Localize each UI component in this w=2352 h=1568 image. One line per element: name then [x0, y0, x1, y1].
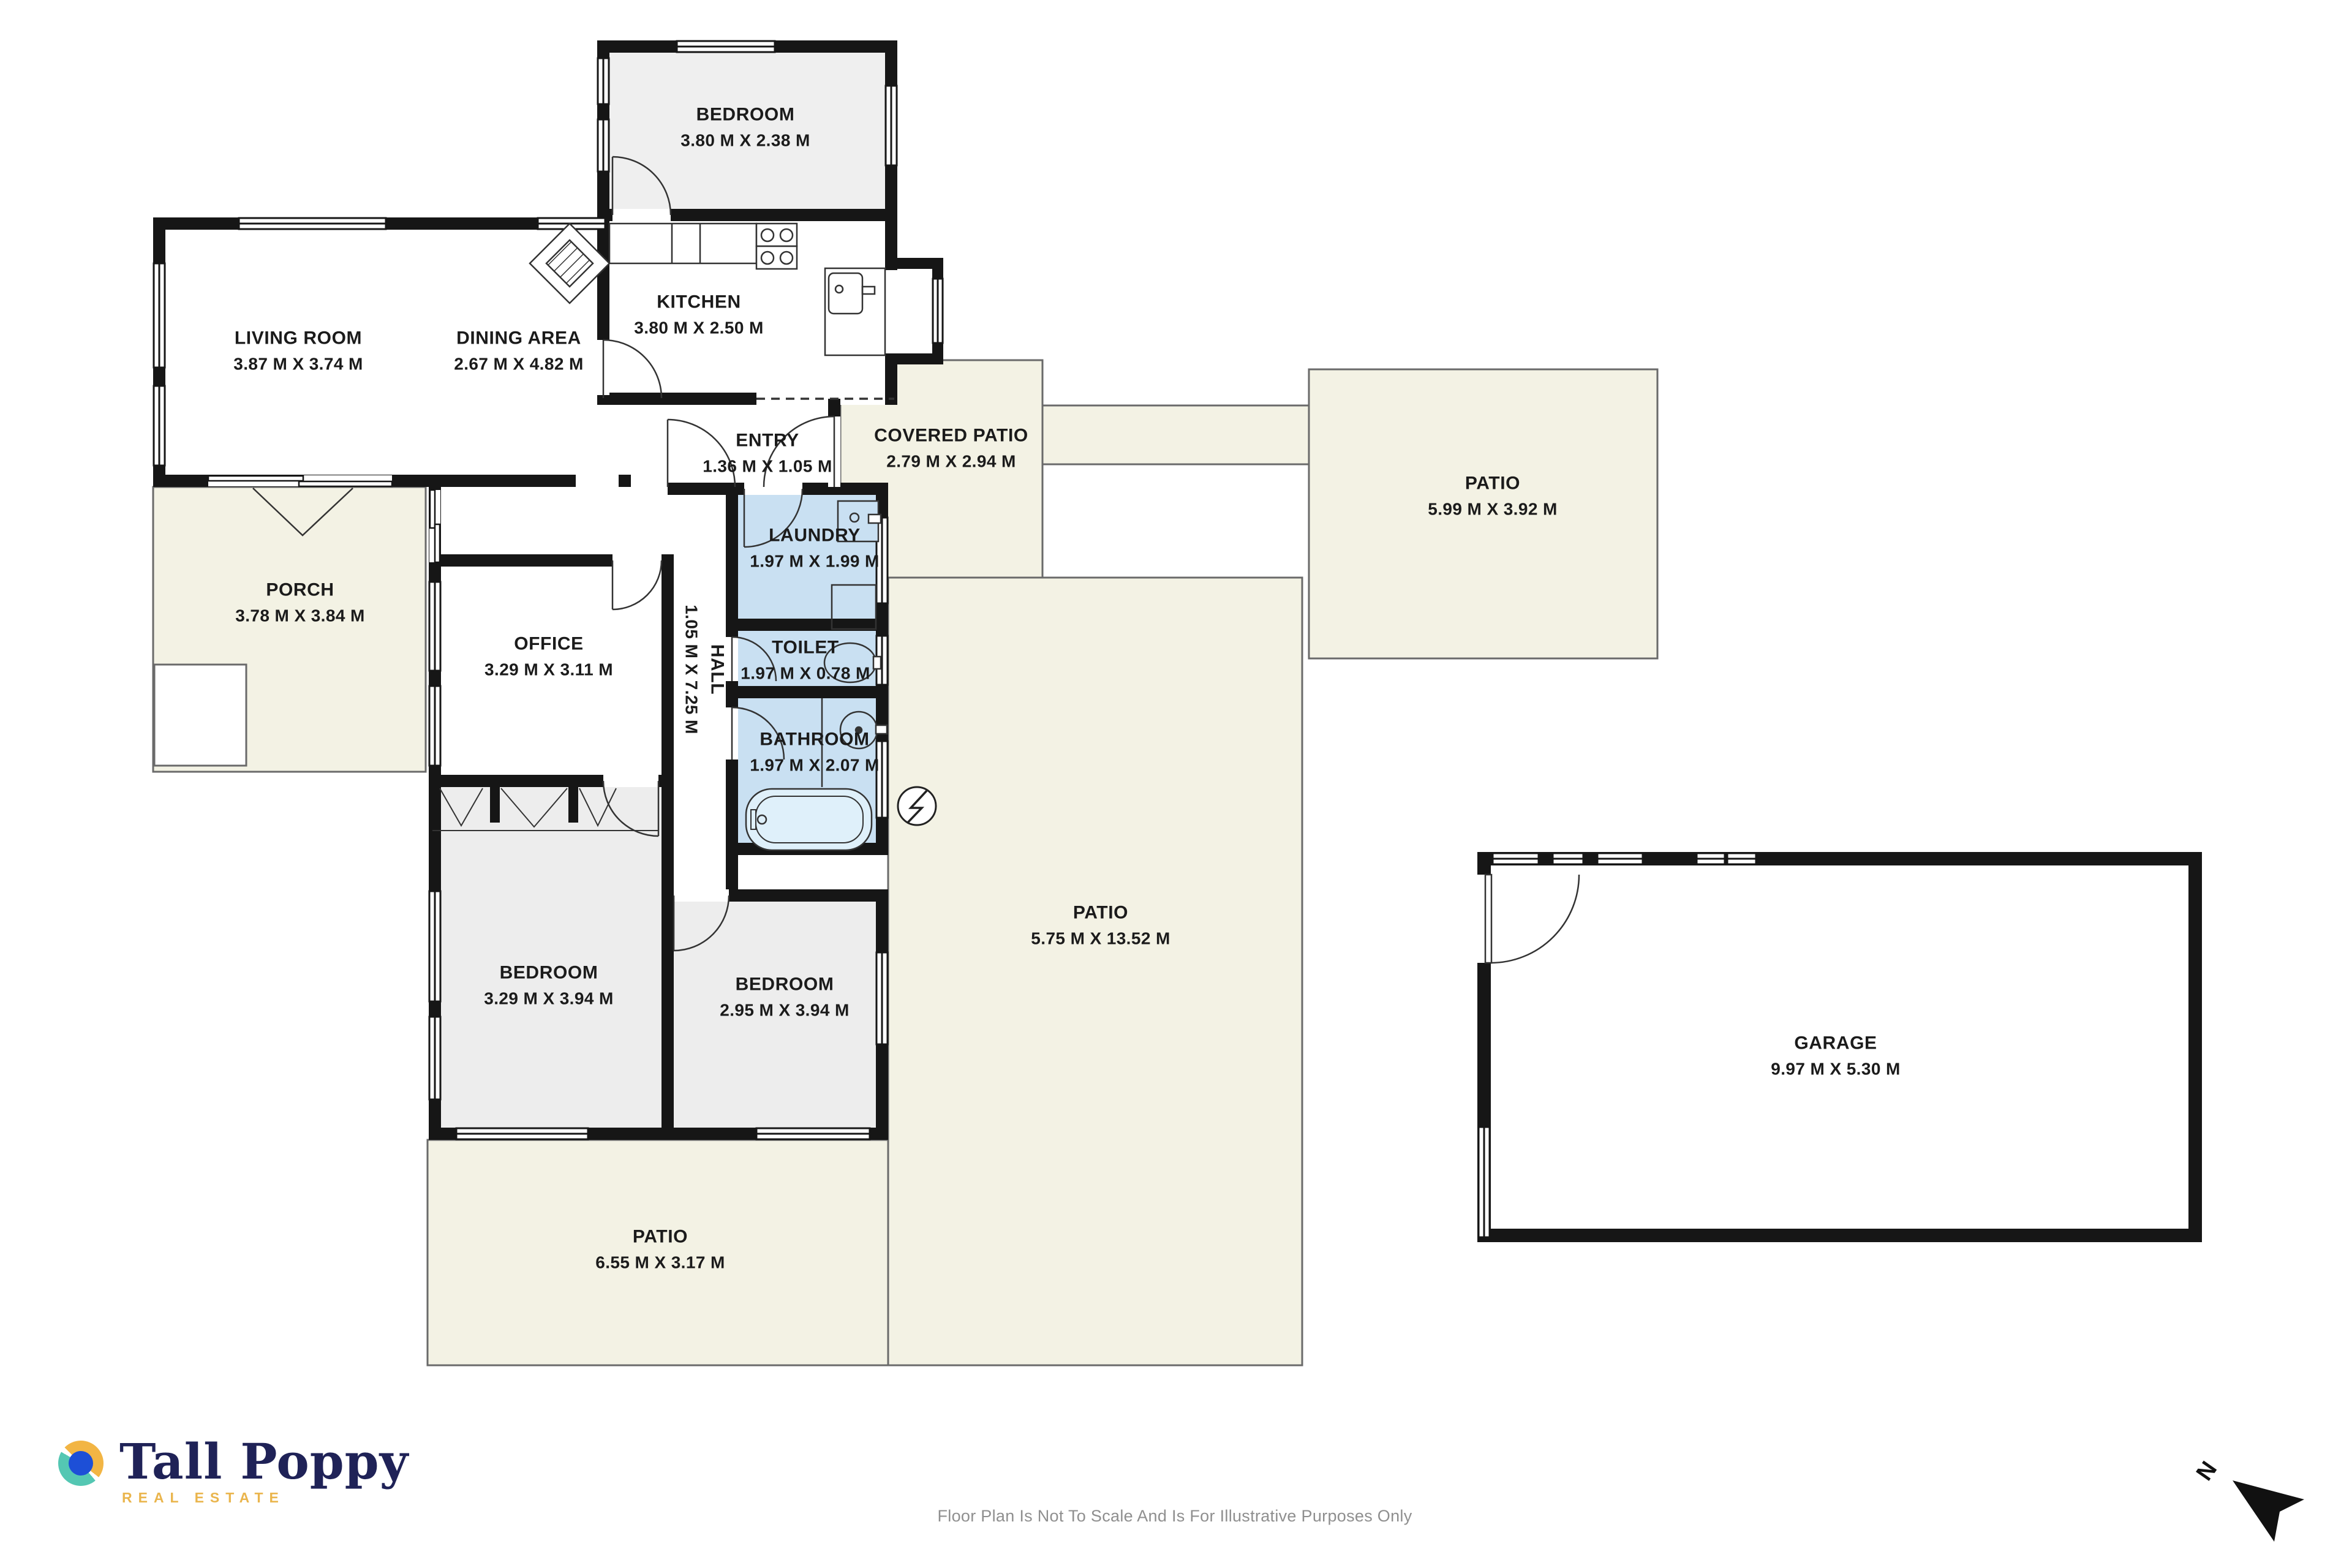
patio-connector-area	[1042, 405, 1311, 464]
sliding-door-hall-porch	[429, 490, 440, 562]
north-arrow-icon: N	[2192, 1457, 2304, 1542]
porch-notch	[154, 665, 246, 766]
patio-right-area	[1309, 369, 1657, 658]
electrical-symbol	[898, 787, 936, 825]
bathtub-icon	[746, 789, 872, 850]
brand-tagline: REAL ESTATE	[122, 1490, 409, 1506]
disclaimer-text: Floor Plan Is Not To Scale And Is For Il…	[937, 1507, 1412, 1526]
brand-wordmark: Tall Poppy	[119, 1437, 409, 1486]
stove-icon	[756, 224, 797, 269]
patio-bottom-area	[428, 1140, 888, 1365]
floor-plan-page: { "rooms": [ {"id":"bedroom-top","name":…	[0, 0, 2352, 1568]
brand-logo: Tall Poppy REAL ESTATE	[58, 1437, 409, 1506]
sliding-door-porch	[208, 475, 392, 486]
floor-plan-canvas: N	[0, 0, 2352, 1568]
outdoor-areas	[153, 360, 1657, 1365]
garage-structure	[1477, 853, 2195, 1237]
tall-poppy-logo-icon	[58, 1441, 104, 1486]
washing-machine-icon	[838, 501, 881, 541]
patio-main-area	[888, 578, 1302, 1365]
logo-center-dot-icon	[69, 1451, 93, 1476]
north-label: N	[2192, 1457, 2222, 1486]
